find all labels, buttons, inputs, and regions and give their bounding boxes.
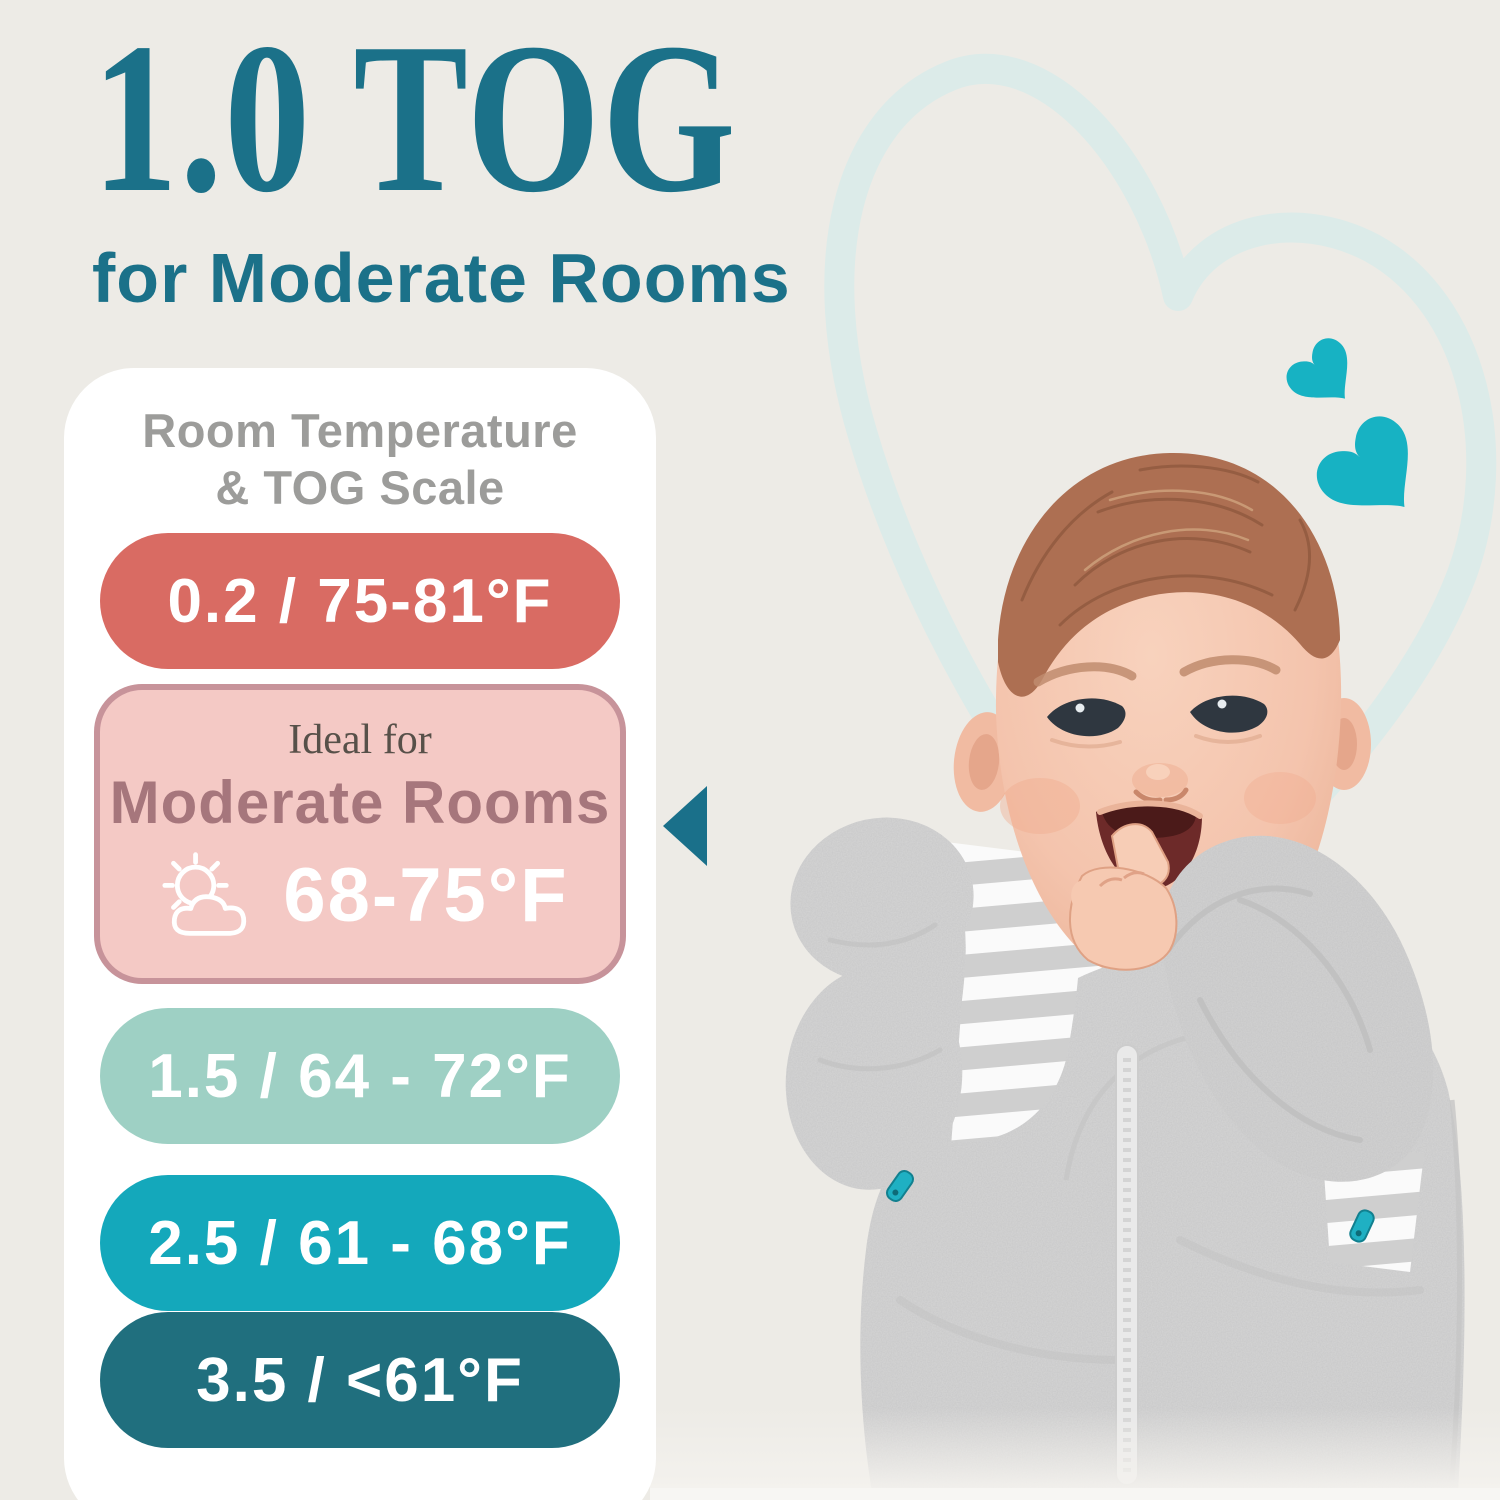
swaddle-torso — [860, 951, 1464, 1492]
tog-row-0-2: 0.2 / 75-81°F — [100, 533, 620, 669]
tog-row-2-5: 2.5 / 61 - 68°F — [100, 1175, 620, 1311]
baby-mouth — [1096, 803, 1202, 890]
tog-row-1-5: 1.5 / 64 - 72°F — [100, 1008, 620, 1144]
ideal-temp-range: 68-75°F — [283, 852, 568, 939]
ideal-room-name: Moderate Rooms — [100, 768, 620, 837]
baby-hair — [998, 453, 1340, 697]
tog-row-3-5: 3.5 / <61°F — [100, 1312, 620, 1448]
baby-eyes — [1047, 696, 1267, 737]
brand-heart-outline — [839, 69, 1481, 948]
swaddle-zipper — [1116, 1045, 1138, 1485]
card-heading-line2: & TOG Scale — [64, 459, 656, 516]
ideal-room-box: Ideal for Moderate Rooms — [94, 684, 626, 984]
baby-raised-arm — [1160, 836, 1433, 1182]
infographic-canvas: 1.0 TOG for Moderate Rooms Room Temperat… — [0, 0, 1500, 1500]
sun-behind-cloud-icon — [151, 847, 267, 943]
card-heading-line1: Room Temperature — [64, 402, 656, 459]
baby-swaddle-wing — [775, 801, 989, 1199]
zipper-pull-left-icon — [884, 1168, 915, 1203]
ideal-prefix: Ideal for — [100, 716, 620, 764]
baby-head — [949, 453, 1371, 985]
page-title: 1.0 TOG — [92, 10, 737, 225]
baby-hand — [1066, 824, 1176, 970]
ideal-pointer-icon — [663, 786, 707, 866]
striped-chest-panel — [930, 840, 1105, 1200]
page-subtitle: for Moderate Rooms — [92, 238, 791, 318]
card-heading: Room Temperature & TOG Scale — [64, 402, 656, 517]
zipper-pull-right-icon — [1348, 1208, 1376, 1244]
tog-scale-card: Room Temperature & TOG Scale 0.2 / 75-81… — [64, 368, 656, 1500]
small-heart-icon — [1280, 332, 1370, 422]
striped-side-panel — [1322, 1142, 1424, 1272]
large-heart-icon — [1307, 406, 1442, 540]
